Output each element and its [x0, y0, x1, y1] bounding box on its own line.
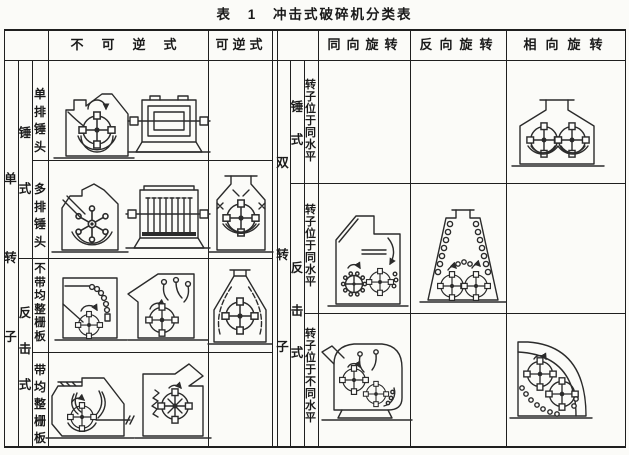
grid-line [18, 258, 272, 259]
label-multi-row-hammerhead: 多排锤头 [32, 181, 48, 251]
diagram-single-row-hammer-axial-view [126, 86, 212, 158]
header-facing-direction: 相向旋转 [506, 30, 625, 60]
label-rotors-same-level-2: 转子位于同水平 [303, 204, 318, 288]
diagram-multi-row-hammer-side-view [50, 172, 130, 256]
diagram-co-rotating-diff-level [320, 330, 414, 426]
label-single-row-hammerhead: 单排锤头 [32, 86, 48, 156]
header-non-reversible: 不可逆式 [48, 30, 208, 60]
diagram-with-grate-comb [133, 360, 213, 444]
diagram-single-row-hammer-side-view [52, 78, 136, 162]
diagram-with-grate-side [44, 356, 136, 444]
label-without-grate: 不带均整栅板 [32, 263, 48, 344]
grid-line [304, 313, 625, 314]
diagram-impact-hanging-plates [126, 264, 210, 344]
grid-line [318, 30, 319, 446]
diagram-counter-rotating-same-level [418, 206, 508, 308]
diagram-facing-diff-level [506, 328, 596, 426]
grid-line [4, 60, 625, 61]
page-title: 表 1 冲击式破碎机分类表 [0, 3, 629, 23]
label-impact-type-right: 反击式 [290, 247, 304, 375]
label-hammer-type-left: 锤式 [18, 105, 32, 217]
label-rotors-same-level-1: 转子位于同水平 [303, 79, 318, 163]
header-reversible: 可逆式 [208, 30, 272, 60]
grid-line [4, 446, 626, 448]
grid-line [32, 352, 272, 353]
header-same-direction: 同向旋转 [318, 30, 410, 60]
label-single-rotor: 单转子 [3, 140, 18, 377]
grid-line [290, 183, 625, 184]
label-double-rotor: 双转子 [275, 117, 290, 393]
scanned-table-page: 表 1 冲击式破碎机分类表 不可逆式 可逆式 同向旋转 反向旋转 相向旋转 单转… [0, 0, 629, 455]
diagram-reversible-impact-crusher [206, 264, 274, 348]
label-rotors-different-level: 转子位于不同水平 [303, 328, 318, 424]
diagram-facing-same-level [510, 88, 606, 172]
diagram-multi-row-hammer-axial-view [124, 178, 212, 254]
diagram-reversible-hammer-crusher [207, 160, 275, 258]
diagram-co-rotating-same-level [326, 202, 410, 312]
label-hammer-type-right: 锤式 [290, 91, 304, 157]
label-impact-type-left: 反击式 [18, 295, 32, 403]
diagram-impact-chain-curtain [53, 268, 129, 344]
header-opposite-direction: 反向旋转 [410, 30, 506, 60]
grid-line [625, 29, 626, 448]
